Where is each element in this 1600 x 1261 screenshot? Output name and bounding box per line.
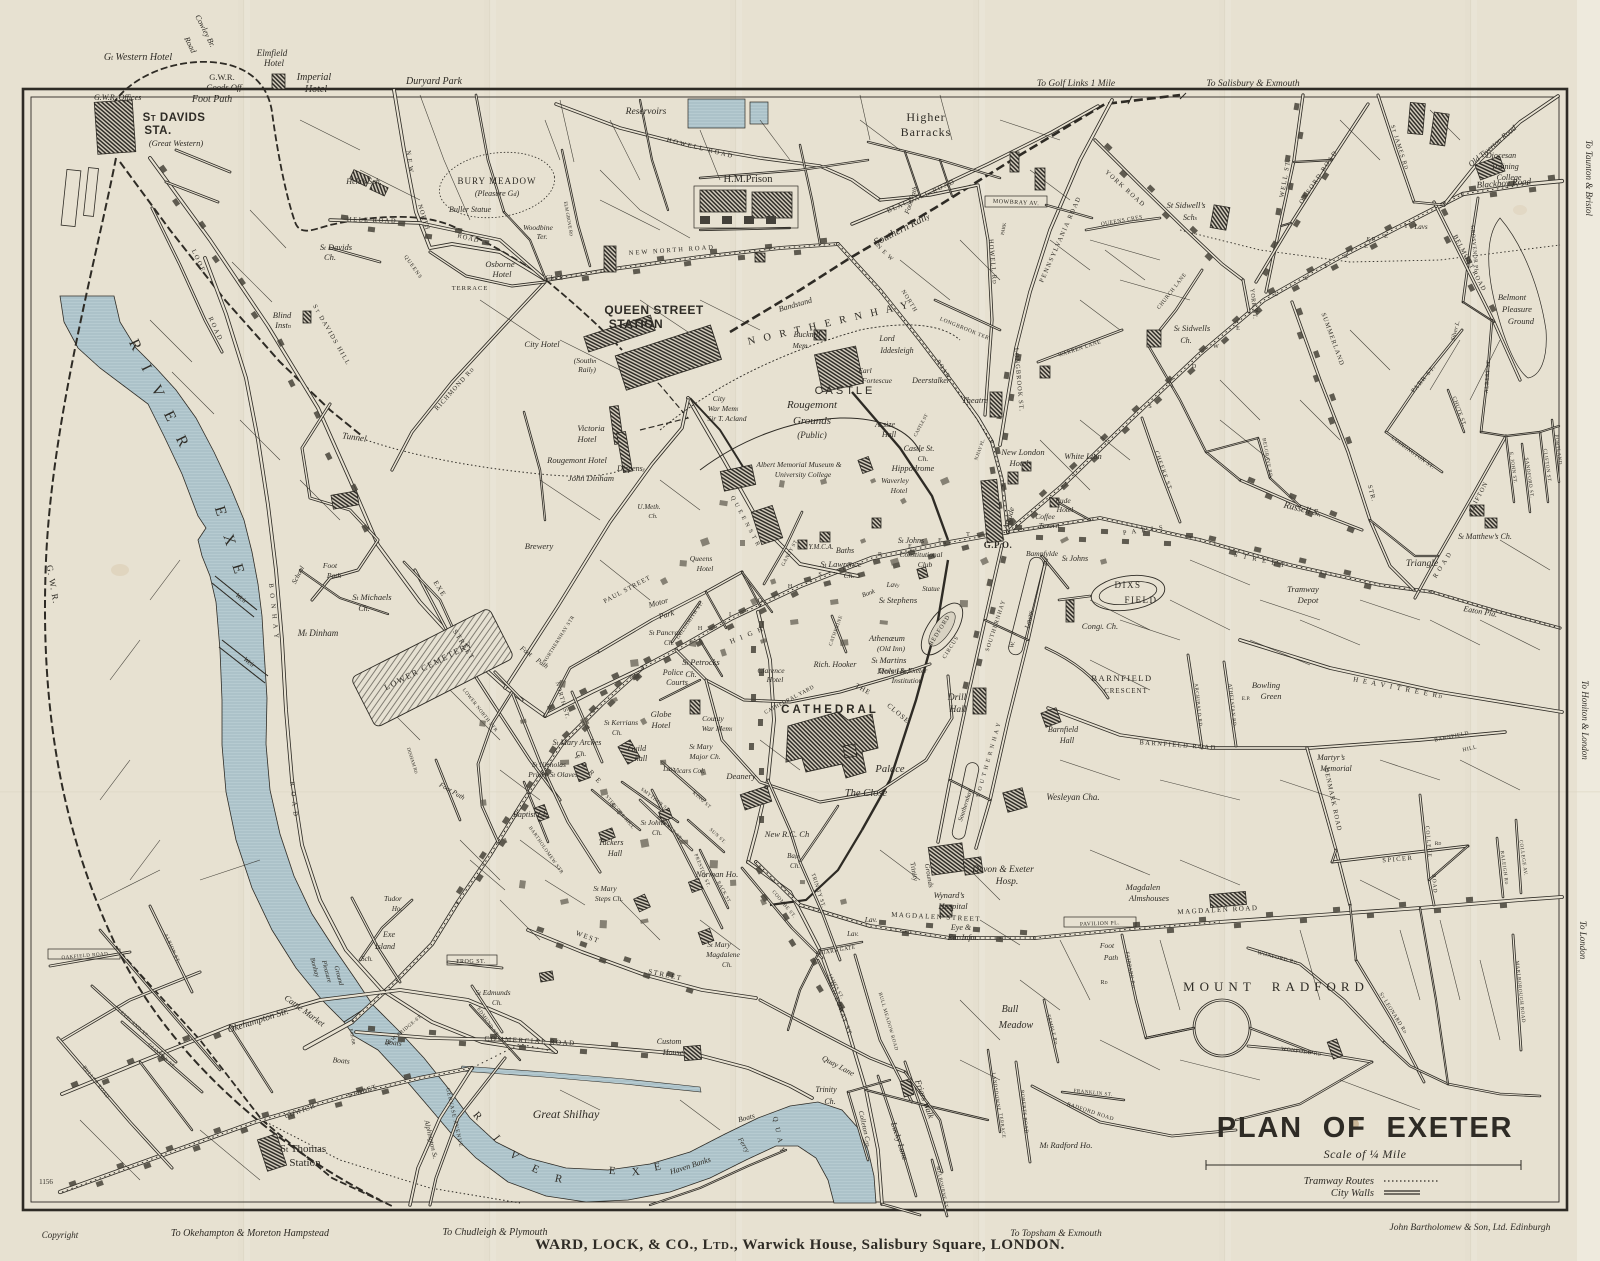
svg-text:Magdalene: Magdalene [705, 950, 740, 959]
svg-text:Path: Path [1103, 953, 1118, 962]
svg-text:Police: Police [662, 668, 684, 677]
svg-text:Ch.: Ch. [652, 829, 662, 837]
svg-text:To Taunton & Bristol: To Taunton & Bristol [1584, 140, 1594, 217]
svg-text:Hall: Hall [607, 849, 623, 858]
svg-text:Grounds: Grounds [793, 415, 831, 427]
svg-text:Baths: Baths [836, 546, 854, 555]
svg-text:To Salisbury & Exmouth: To Salisbury & Exmouth [1206, 79, 1300, 89]
svg-text:Congl. Ch.: Congl. Ch. [1082, 621, 1118, 631]
svg-text:DIXS: DIXS [1114, 580, 1141, 590]
svg-text:Great Shilhay: Great Shilhay [533, 1107, 600, 1121]
svg-text:Training: Training [1491, 162, 1519, 171]
svg-text:Ch.: Ch. [612, 729, 622, 737]
svg-text:Path: Path [326, 571, 341, 580]
svg-text:T: T [1324, 264, 1328, 270]
svg-text:Castle St.: Castle St. [904, 444, 935, 453]
svg-text:U.Meth.: U.Meth. [638, 503, 661, 511]
svg-text:Hall: Hall [1059, 736, 1075, 745]
svg-text:Higher: Higher [906, 110, 945, 124]
svg-text:Foot Path: Foot Path [191, 94, 232, 105]
svg-text:Hotel: Hotel [304, 84, 327, 95]
svg-text:(Great Western): (Great Western) [149, 138, 204, 148]
svg-text:Ear Infm.: Ear Infm. [947, 933, 979, 942]
svg-text:Gt Western Hotel: Gt Western Hotel [104, 52, 172, 63]
svg-text:To London: To London [1578, 921, 1588, 960]
svg-text:Globe: Globe [651, 709, 672, 719]
svg-text:E: E [1236, 326, 1240, 332]
svg-text:Meadow: Meadow [998, 1020, 1034, 1031]
svg-text:St Mary: St Mary [689, 742, 713, 751]
svg-text:L: L [1256, 308, 1260, 314]
svg-text:Hotel: Hotel [1009, 458, 1030, 468]
svg-text:St Kerrians: St Kerrians [604, 718, 638, 727]
svg-text:Boats: Boats [384, 1037, 402, 1047]
svg-text:Brewery: Brewery [525, 541, 554, 551]
svg-text:Hele’s Sch.: Hele’s Sch. [345, 177, 381, 186]
svg-text:Copyright: Copyright [42, 1230, 79, 1240]
svg-text:Ho.: Ho. [391, 905, 403, 913]
svg-text:FROG ST.: FROG ST. [456, 959, 486, 965]
svg-text:Ch.: Ch. [324, 252, 336, 262]
svg-text:Hippodrome: Hippodrome [891, 463, 935, 473]
svg-text:St Johns: St Johns [1062, 554, 1088, 563]
svg-text:Bampfylde: Bampfylde [1026, 549, 1059, 558]
svg-text:Ch.: Ch. [790, 862, 800, 870]
svg-text:E.P.: E.P. [1242, 696, 1251, 702]
svg-text:W: W [1213, 344, 1219, 350]
svg-text:To Chudleigh & Plymouth: To Chudleigh & Plymouth [443, 1227, 548, 1238]
svg-text:Buller Statue: Buller Statue [449, 205, 491, 214]
svg-text:Devon & Exeter: Devon & Exeter [878, 666, 928, 675]
svg-text:Scale of ¼ Mile: Scale of ¼ Mile [1324, 1147, 1407, 1161]
svg-text:I: I [1171, 384, 1173, 390]
svg-text:G.P.O.: G.P.O. [984, 540, 1012, 550]
svg-text:Eye &: Eye & [950, 923, 972, 932]
svg-text:ST DAVIDS: ST DAVIDS [143, 112, 206, 124]
svg-text:Athenæum: Athenæum [868, 633, 905, 643]
svg-text:QUEEN STREET: QUEEN STREET [604, 303, 704, 317]
svg-text:Ch.: Ch. [664, 639, 674, 647]
svg-text:Ter.: Ter. [537, 232, 548, 241]
svg-text:1156: 1156 [39, 1178, 53, 1186]
svg-text:E: E [1364, 244, 1368, 250]
svg-text:Steps Ch.: Steps Ch. [595, 894, 623, 903]
svg-text:City Walls: City Walls [1331, 1188, 1374, 1199]
svg-text:St Sidwells: St Sidwells [1174, 323, 1211, 333]
svg-text:St Petrocks: St Petrocks [682, 657, 720, 667]
svg-text:STATION: STATION [609, 317, 663, 331]
svg-text:Green: Green [1261, 691, 1282, 701]
svg-text:Depot: Depot [1297, 595, 1319, 605]
svg-text:Victoria: Victoria [577, 423, 604, 433]
svg-text:Boats: Boats [332, 1055, 350, 1065]
svg-text:Tuckers: Tuckers [599, 838, 624, 847]
svg-text:(Public): (Public) [797, 430, 827, 440]
svg-text:Statue: Statue [922, 585, 940, 593]
svg-text:STA.: STA. [144, 125, 171, 137]
svg-text:D: D [1192, 364, 1197, 370]
svg-text:FIELD: FIELD [1125, 595, 1158, 605]
svg-text:Rougemont: Rougemont [786, 399, 838, 411]
svg-text:H.M.Prison: H.M.Prison [723, 174, 773, 185]
svg-text:Mt Dinham: Mt Dinham [297, 628, 339, 638]
svg-text:G.W.R.: G.W.R. [209, 72, 234, 82]
svg-text:Clock: Clock [545, 273, 563, 282]
svg-text:Ground: Ground [1508, 316, 1535, 326]
svg-text:Barnfield: Barnfield [1048, 725, 1079, 734]
svg-text:Ch.: Ch. [358, 604, 369, 613]
svg-text:G: G [758, 598, 763, 604]
svg-text:Lord: Lord [878, 334, 895, 343]
svg-text:The Close: The Close [845, 788, 888, 799]
svg-text:John Dinham: John Dinham [568, 473, 614, 483]
svg-text:Diocesan: Diocesan [1485, 151, 1516, 160]
svg-text:College: College [1497, 173, 1522, 182]
svg-text:Rougemont Hotel: Rougemont Hotel [546, 455, 607, 465]
svg-text:Goods Off: Goods Off [206, 82, 243, 92]
svg-text:Tramway: Tramway [1287, 584, 1319, 594]
svg-text:E: E [938, 538, 942, 544]
svg-text:St Matthew’s Ch.: St Matthew’s Ch. [1458, 532, 1512, 541]
svg-text:Tudor: Tudor [384, 894, 402, 903]
svg-text:PLAN OF EXETER: PLAN OF EXETER [1217, 1112, 1514, 1144]
svg-text:Ch.: Ch. [648, 513, 658, 520]
svg-text:Barracks: Barracks [901, 125, 952, 139]
svg-text:St Mary: St Mary [593, 884, 617, 893]
svg-text:R: R [878, 552, 882, 558]
svg-text:Hotel: Hotel [696, 564, 714, 573]
svg-text:TERRACE: TERRACE [452, 285, 489, 292]
svg-text:New R.C. Ch: New R.C. Ch [764, 829, 809, 839]
svg-text:Dispensy: Dispensy [616, 464, 646, 473]
svg-text:Sir T. Acland: Sir T. Acland [707, 414, 746, 423]
svg-text:Hospital: Hospital [937, 901, 968, 911]
svg-text:John Bartholomew & Son, Ltd. E: John Bartholomew & Son, Ltd. Edinburgh [1390, 1223, 1551, 1233]
svg-text:Tavern: Tavern [1039, 521, 1060, 530]
svg-text:St Michaels: St Michaels [352, 592, 392, 602]
svg-text:L: L [1274, 292, 1278, 298]
svg-text:Drill: Drill [947, 693, 967, 703]
svg-text:Hotel: Hotel [577, 434, 598, 444]
svg-text:Lav.: Lav. [864, 915, 878, 924]
svg-text:G.W.R. Offices: G.W.R. Offices [94, 93, 141, 102]
svg-text:E: E [908, 544, 912, 550]
svg-text:E.P.: E.P. [1365, 237, 1376, 243]
svg-text:War Meml: War Meml [708, 404, 739, 413]
svg-text:Almshouses: Almshouses [1128, 893, 1170, 903]
svg-text:Guild: Guild [628, 744, 647, 753]
svg-text:(Old Inn): (Old Inn) [877, 644, 906, 653]
svg-text:Hotel: Hotel [651, 720, 672, 730]
svg-text:Woodbine: Woodbine [523, 223, 553, 232]
svg-text:Raily): Raily) [577, 365, 596, 374]
svg-text:Courts: Courts [666, 678, 688, 687]
svg-text:Hotel: Hotel [263, 58, 284, 68]
svg-text:R: R [1344, 254, 1348, 260]
svg-text:Earl: Earl [857, 366, 871, 375]
svg-text:Club: Club [918, 560, 933, 569]
svg-text:Reservoirs: Reservoirs [625, 107, 667, 117]
svg-text:Martyr’s: Martyr’s [1316, 753, 1345, 762]
svg-text:Bull: Bull [1002, 1004, 1019, 1015]
svg-text:H: H [788, 584, 793, 590]
svg-text:Clarence: Clarence [757, 666, 785, 675]
svg-text:Ch.: Ch. [844, 571, 855, 580]
svg-text:Ch.: Ch. [722, 961, 732, 969]
svg-text:Island: Island [374, 942, 396, 951]
svg-text:Magdalen: Magdalen [1125, 882, 1160, 892]
svg-text:Ch.: Ch. [824, 1097, 835, 1106]
svg-text:Station: Station [289, 1157, 321, 1169]
svg-text:Iddesleigh: Iddesleigh [879, 346, 913, 355]
svg-text:Foot: Foot [322, 561, 338, 570]
svg-text:S: S [818, 572, 821, 578]
svg-text:Major Ch.: Major Ch. [688, 752, 720, 761]
svg-text:St Martins: St Martins [872, 655, 908, 665]
svg-text:Bude: Bude [1055, 496, 1071, 505]
svg-text:Theatre: Theatre [962, 395, 988, 405]
svg-text:Fortescue: Fortescue [861, 376, 893, 385]
svg-text:County: County [702, 714, 724, 723]
svg-text:Hotel: Hotel [890, 486, 908, 495]
svg-text:University College: University College [775, 470, 832, 479]
svg-text:T: T [966, 532, 970, 538]
svg-text:St Sidwell’s: St Sidwell’s [1167, 200, 1206, 210]
svg-text:St Lawrence: St Lawrence [820, 559, 861, 569]
svg-text:Priory St Olaves: Priory St Olaves [527, 770, 578, 779]
svg-text:Queens: Queens [690, 554, 713, 563]
svg-text:CASTLE: CASTLE [815, 385, 876, 397]
svg-text:Baptist Ch.: Baptist Ch. [513, 810, 549, 819]
svg-text:St Nicholas: St Nicholas [532, 760, 566, 769]
svg-text:Mem.: Mem. [792, 341, 810, 350]
svg-text:Deerstalker: Deerstalker [911, 376, 951, 385]
svg-text:CATHEDRAL: CATHEDRAL [781, 704, 879, 716]
svg-text:Constitutional: Constitutional [900, 550, 943, 559]
svg-text:Ch.: Ch. [492, 999, 502, 1007]
svg-text:To Okehampton & Moreton Hampst: To Okehampton & Moreton Hampstead [171, 1228, 330, 1239]
svg-text:Custom: Custom [657, 1037, 682, 1046]
svg-text:Y.M.C.A.: Y.M.C.A. [808, 543, 833, 551]
svg-text:Blind: Blind [273, 310, 292, 320]
svg-text:E: E [1384, 234, 1388, 240]
svg-text:Hall: Hall [949, 705, 967, 715]
svg-text:Coffee: Coffee [1035, 512, 1055, 521]
svg-text:Institution: Institution [891, 676, 923, 685]
svg-text:Ch.: Ch. [1180, 336, 1191, 345]
svg-text:S: S [1304, 276, 1307, 282]
svg-text:House: House [662, 1048, 684, 1057]
svg-text:Bowling: Bowling [1252, 680, 1280, 690]
svg-text:Hotel: Hotel [1056, 505, 1074, 514]
svg-text:Rich. Hooker: Rich. Hooker [813, 660, 858, 669]
svg-text:St Mary: St Mary [707, 940, 731, 949]
svg-text:Palace: Palace [874, 764, 904, 775]
svg-text:St Edmunds: St Edmunds [475, 988, 510, 997]
svg-text:Exe: Exe [382, 930, 395, 939]
svg-text:Assize: Assize [874, 420, 895, 429]
svg-text:Wynard’s: Wynard’s [934, 890, 966, 900]
svg-text:New London: New London [1000, 447, 1044, 457]
svg-text:I: I [729, 612, 731, 618]
svg-text:Belmont: Belmont [1498, 292, 1527, 302]
svg-text:WARD, LOCK, & CO., LTD., Warwi: WARD, LOCK, & CO., LTD., Warwick House, … [535, 1236, 1065, 1253]
svg-text:Lavs: Lavs [1413, 223, 1428, 231]
svg-text:Sch.: Sch. [361, 955, 373, 963]
svg-text:Hotel: Hotel [492, 269, 513, 279]
svg-text:E: E [608, 1165, 616, 1178]
svg-text:Triangle: Triangle [1406, 559, 1438, 569]
svg-text:War Meml: War Meml [702, 724, 733, 733]
svg-text:Lav.: Lav. [846, 930, 859, 938]
svg-text:Imperial: Imperial [296, 72, 332, 83]
svg-text:T: T [848, 562, 852, 568]
svg-text:To Honiton & London: To Honiton & London [1580, 680, 1590, 760]
svg-text:MOUNT RADFORD: MOUNT RADFORD [1183, 979, 1369, 994]
svg-text:H: H [698, 626, 703, 632]
svg-text:Elmfield: Elmfield [256, 48, 288, 58]
svg-text:Hotel: Hotel [766, 675, 784, 684]
svg-text:X: X [631, 1166, 640, 1179]
svg-text:St Thomas: St Thomas [280, 1143, 326, 1155]
svg-text:hall: hall [635, 754, 648, 763]
svg-text:Devon & Exeter: Devon & Exeter [971, 865, 1034, 875]
svg-text:Duryard Park: Duryard Park [405, 76, 463, 87]
svg-text:CRESCENT: CRESCENT [1104, 687, 1148, 695]
svg-text:Foot: Foot [1099, 941, 1115, 950]
svg-text:Waverley: Waverley [881, 476, 909, 485]
svg-text:BURY MEADOW: BURY MEADOW [458, 176, 537, 186]
svg-text:Pleasure: Pleasure [1501, 304, 1532, 314]
svg-text:Memorial: Memorial [1319, 764, 1352, 773]
svg-text:T: T [1404, 224, 1408, 230]
svg-text:BARNFIELD: BARNFIELD [1091, 673, 1152, 683]
svg-text:Tramway Routes: Tramway Routes [1304, 1176, 1374, 1187]
svg-text:Trinity: Trinity [815, 1085, 837, 1094]
svg-text:Hosp.: Hosp. [995, 877, 1018, 887]
svg-text:(Pleasure Gd): (Pleasure Gd) [475, 189, 520, 198]
svg-text:(Southn: (Southn [574, 356, 597, 365]
svg-text:St Mary Arches: St Mary Arches [553, 738, 602, 747]
svg-text:City Hotel: City Hotel [524, 339, 560, 349]
svg-text:St Pancras: St Pancras [649, 628, 681, 637]
svg-text:To Golf Links 1 Mile: To Golf Links 1 Mile [1037, 78, 1115, 89]
svg-text:White Lion: White Lion [1064, 451, 1102, 461]
svg-text:Ch.: Ch. [918, 454, 929, 463]
svg-text:Albert Memorial Museum &: Albert Memorial Museum & [755, 460, 841, 469]
svg-text:Osborne: Osborne [485, 259, 515, 269]
svg-text:Hall: Hall [881, 430, 897, 439]
svg-text:City: City [713, 394, 726, 403]
svg-text:Wesleyan Cha.: Wesleyan Cha. [1046, 792, 1099, 802]
svg-text:St Stephens: St Stephens [879, 595, 918, 605]
svg-text:S: S [1148, 404, 1151, 410]
svg-text:Bucknill: Bucknill [794, 330, 821, 339]
svg-text:Vicars Col.: Vicars Col. [673, 767, 705, 775]
svg-text:Deanery: Deanery [725, 771, 755, 781]
